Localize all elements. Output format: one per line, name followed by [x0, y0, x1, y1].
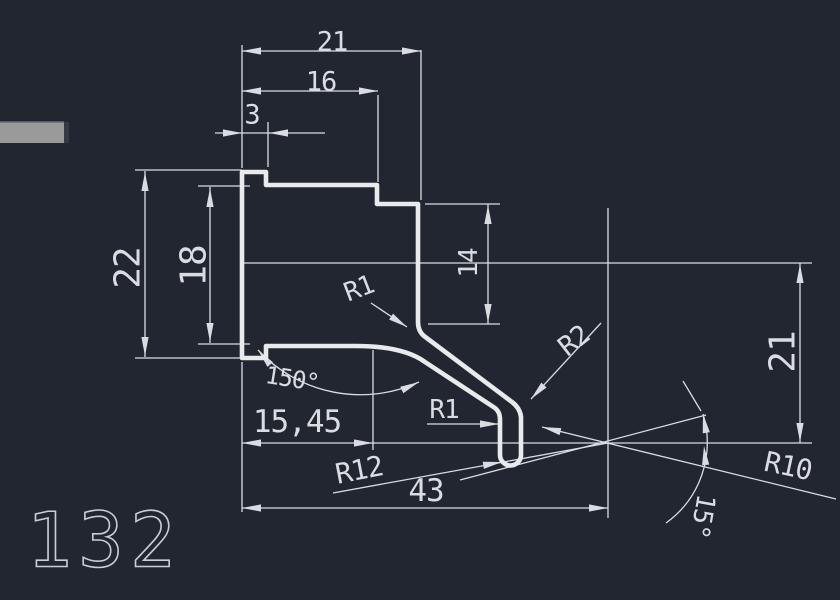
dim-text: 15,45	[253, 404, 341, 440]
gray-bar-body	[0, 122, 64, 143]
dim-text: 18	[174, 245, 215, 286]
gray-bar-top-edge	[0, 121, 64, 123]
dim-text: 16	[306, 67, 337, 98]
dim-text: 21	[317, 27, 348, 58]
dim-text: 22	[108, 247, 149, 288]
cad-canvas[interactable]: 21 16 3 22 18 14 21	[0, 0, 840, 600]
cad-drawing: 21 16 3 22 18 14 21	[0, 0, 840, 600]
dim-text: 3	[244, 100, 259, 131]
gray-bar-end-shadow	[64, 122, 69, 143]
dim-text: 14	[454, 248, 484, 278]
dim-text: 21	[763, 331, 804, 372]
gray-bar	[0, 121, 69, 143]
dim-text: R1	[429, 395, 458, 425]
sheet-number: 132	[26, 496, 181, 585]
